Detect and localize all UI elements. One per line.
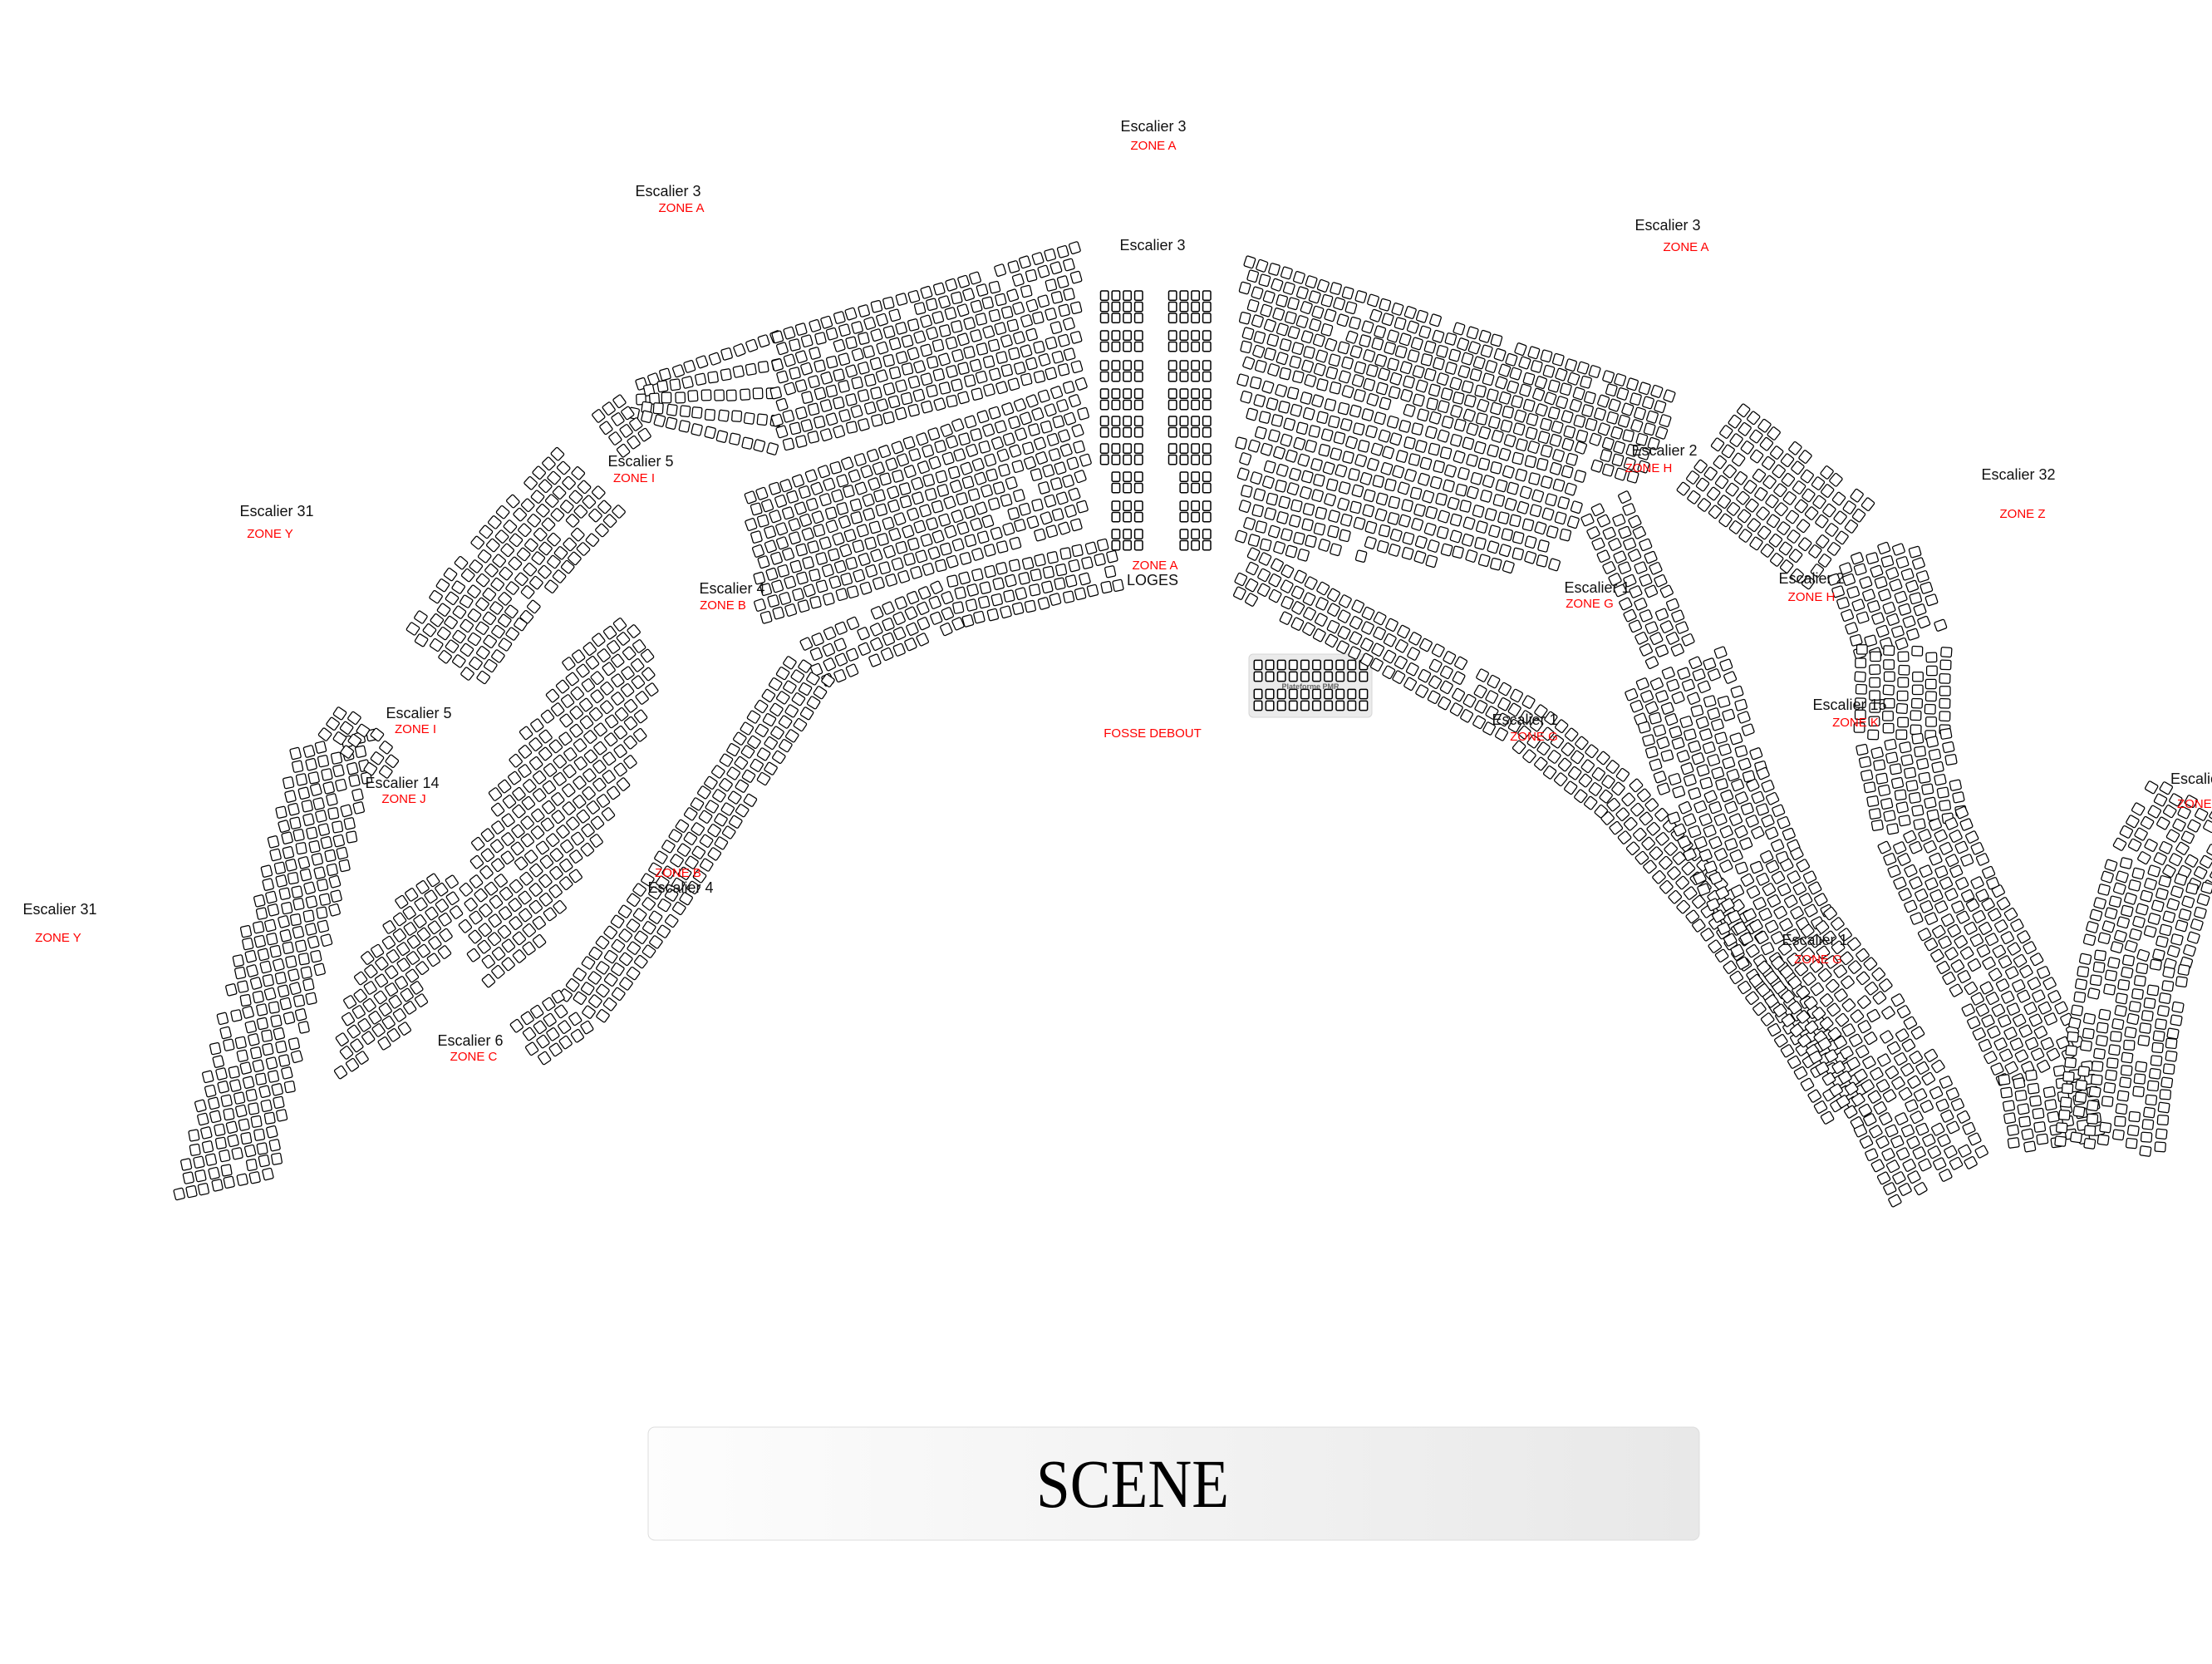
svg-text:ZONE Y: ZONE Y — [247, 527, 293, 541]
svg-text:Escalier 3: Escalier 3 — [1120, 118, 1186, 135]
svg-text:Escalier 2: Escalier 2 — [1778, 570, 1844, 587]
svg-text:ZONE I: ZONE I — [395, 722, 436, 736]
svg-text:ZONE A: ZONE A — [1130, 139, 1176, 153]
svg-text:ZONE G: ZONE G — [1794, 953, 1842, 967]
svg-text:Escalier 3: Escalier 3 — [635, 183, 700, 199]
svg-text:ZONE B: ZONE B — [655, 866, 701, 880]
svg-text:Escalier 32: Escalier 32 — [2170, 770, 2212, 787]
svg-text:ZONE H: ZONE H — [1788, 590, 1836, 604]
svg-text:Plateforme PMR: Plateforme PMR — [1281, 682, 1339, 691]
svg-text:ZONE C: ZONE C — [450, 1050, 498, 1064]
svg-text:Escalier 14: Escalier 14 — [365, 775, 439, 791]
svg-text:Escalier 4: Escalier 4 — [647, 879, 713, 896]
svg-text:Escalier 2: Escalier 2 — [1631, 442, 1697, 459]
svg-text:Escalier 1: Escalier 1 — [1564, 579, 1630, 596]
svg-text:ZONE A: ZONE A — [1663, 240, 1708, 254]
svg-text:Escalier 1: Escalier 1 — [1782, 932, 1847, 948]
svg-text:Escalier 1: Escalier 1 — [1492, 711, 1557, 728]
svg-text:ZONE I: ZONE I — [613, 471, 655, 485]
svg-text:Escalier 5: Escalier 5 — [607, 453, 673, 470]
svg-text:Escalier 4: Escalier 4 — [699, 580, 764, 597]
svg-text:Escalier 3: Escalier 3 — [1634, 217, 1700, 234]
svg-text:Escalier 6: Escalier 6 — [437, 1032, 503, 1049]
svg-text:ZONE Y: ZONE Y — [35, 931, 81, 945]
svg-text:ZONE Z: ZONE Z — [2000, 507, 2046, 521]
svg-text:Escalier 31: Escalier 31 — [239, 503, 313, 519]
svg-text:SCENE: SCENE — [1036, 1445, 1229, 1522]
svg-text:ZONE A: ZONE A — [1132, 559, 1177, 573]
svg-text:ZONE G: ZONE G — [1510, 730, 1558, 744]
svg-text:ZONE H: ZONE H — [1625, 461, 1673, 475]
svg-text:ZONE Z: ZONE Z — [2177, 797, 2212, 811]
svg-text:Escalier 15: Escalier 15 — [1812, 697, 1886, 713]
svg-text:Escalier 5: Escalier 5 — [386, 705, 451, 721]
svg-text:LOGES: LOGES — [1127, 572, 1178, 588]
svg-text:Escalier 32: Escalier 32 — [1981, 466, 2055, 483]
svg-text:ZONE K: ZONE K — [1832, 716, 1879, 730]
svg-text:FOSSE DEBOUT: FOSSE DEBOUT — [1104, 726, 1202, 741]
svg-text:ZONE G: ZONE G — [1566, 597, 1614, 611]
svg-text:Escalier 3: Escalier 3 — [1119, 237, 1185, 254]
svg-text:ZONE J: ZONE J — [381, 792, 425, 806]
svg-text:Escalier 31: Escalier 31 — [22, 901, 96, 918]
svg-text:ZONE B: ZONE B — [700, 598, 746, 613]
svg-text:ZONE A: ZONE A — [658, 201, 704, 215]
